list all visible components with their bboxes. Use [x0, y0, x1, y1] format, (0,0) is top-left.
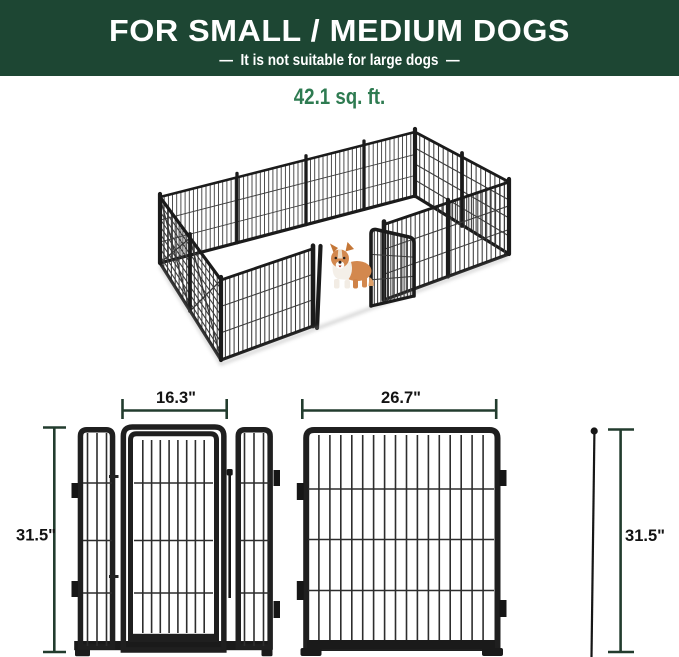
svg-text:31.5": 31.5"	[625, 527, 665, 545]
svg-text:16.3": 16.3"	[156, 389, 196, 407]
svg-text:26.7": 26.7"	[381, 389, 421, 407]
svg-text:31.5": 31.5"	[16, 527, 56, 545]
